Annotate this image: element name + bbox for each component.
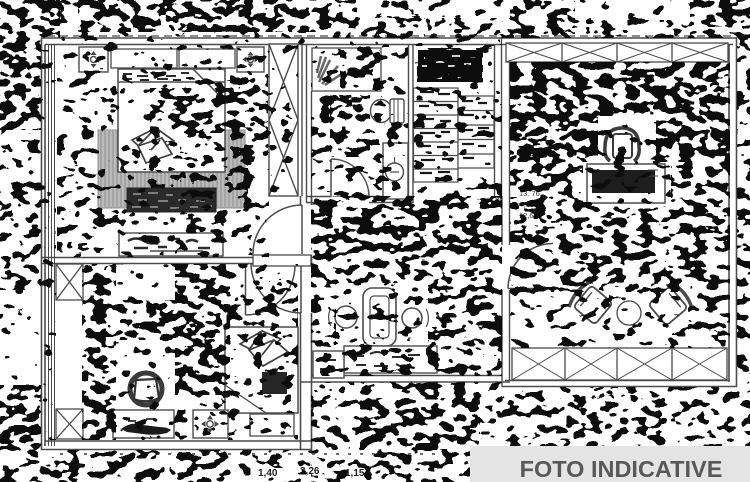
svg-text:FOTO INDICATIVE: FOTO INDICATIVE — [520, 456, 723, 482]
